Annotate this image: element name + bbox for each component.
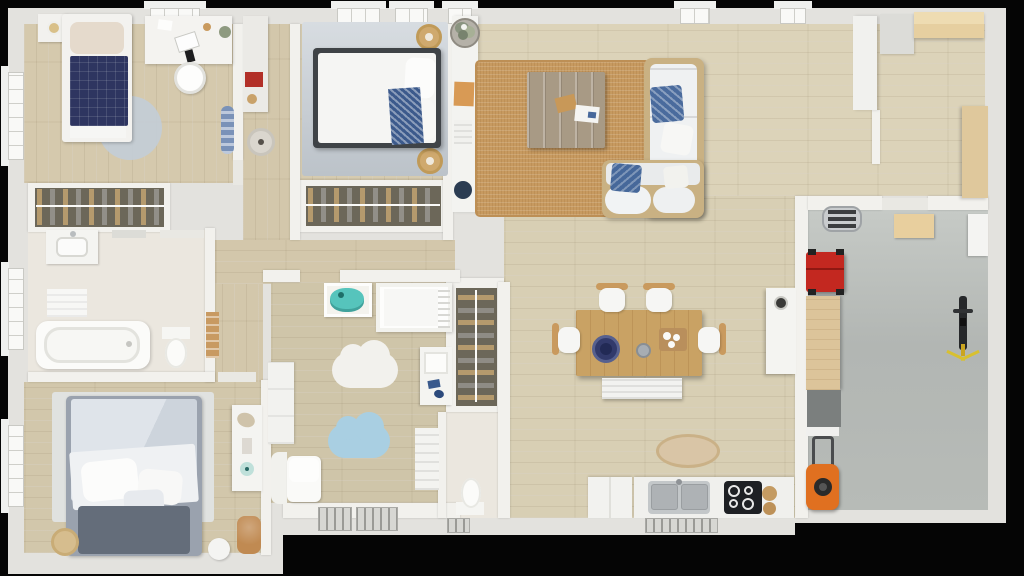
window-guest-bedroom-left bbox=[8, 425, 24, 507]
garage-creeper-pads bbox=[828, 210, 856, 228]
hall-closet-rod-rod bbox=[475, 290, 477, 402]
bath-vanity-faucet bbox=[70, 231, 76, 237]
kitchen-oval-rug-rug bbox=[656, 434, 720, 468]
kids-desk-chair-seat bbox=[174, 62, 206, 94]
coffee-table-blue-card bbox=[588, 112, 597, 119]
window-nursery-bottom-1 bbox=[318, 507, 352, 531]
navy-bowl-center bbox=[600, 343, 612, 355]
lawn-mower-handle bbox=[812, 436, 834, 466]
window-living-top-2 bbox=[680, 8, 710, 24]
bicycle-on-stand-stand-post bbox=[961, 344, 965, 356]
dining-chair-left-seat bbox=[558, 327, 580, 353]
kids-closet-clothes bbox=[37, 189, 163, 225]
master-closet-rod bbox=[306, 204, 440, 206]
bath-toilet-bowl bbox=[165, 338, 187, 368]
nursery-toy-box-teal-plush bbox=[330, 288, 364, 312]
garage-door bbox=[882, 198, 928, 210]
dining-chair-top-2-seat bbox=[646, 288, 672, 312]
master-bed-blue-throw bbox=[388, 87, 424, 145]
window-kitchen-bottom bbox=[645, 518, 718, 533]
nook-shelf-dot bbox=[247, 94, 257, 104]
guest-bed-footboard bbox=[78, 506, 190, 554]
bathroom-door bbox=[160, 230, 204, 238]
dining-bench-bench bbox=[602, 378, 682, 399]
cork-stool-stool bbox=[237, 516, 261, 554]
wall-nursery-north-a bbox=[263, 270, 300, 282]
living-console-books bbox=[454, 120, 472, 144]
kitchen-counter-burner-1 bbox=[728, 485, 740, 497]
nursery-armchair-cushion bbox=[289, 458, 319, 482]
wall-nursery-north-b bbox=[340, 270, 460, 282]
guest-dresser-item bbox=[242, 438, 252, 454]
kids-desk-plant bbox=[219, 26, 231, 38]
red-tool-cart-body bbox=[806, 252, 844, 292]
nursery-slat-rack-rack bbox=[415, 428, 439, 490]
red-tool-cart-wheel-2 bbox=[836, 249, 844, 255]
kitchen-unit-divider bbox=[609, 477, 611, 518]
floor-plan-render bbox=[0, 0, 1024, 576]
guest-bedroom-door bbox=[218, 372, 256, 382]
kids-desk-mug bbox=[203, 23, 211, 31]
entry-bench-top bbox=[914, 12, 984, 24]
nursery-crib-mattress bbox=[384, 289, 438, 326]
wall-entry-partition bbox=[872, 110, 880, 164]
wall-garage-north-b bbox=[928, 196, 988, 210]
sofa-white-throw bbox=[660, 122, 695, 157]
serving-tray-cup-3 bbox=[668, 341, 675, 348]
kids-closet-rod bbox=[36, 205, 164, 207]
white-cloud-rug-puff-2 bbox=[358, 340, 390, 372]
kitchen-counter-basin-1 bbox=[651, 484, 678, 510]
wall-bathroom-east bbox=[205, 228, 215, 382]
nursery-toy-box-plush-eye bbox=[338, 292, 344, 298]
nursery-crib-slats bbox=[438, 287, 450, 328]
dining-chair-right-back bbox=[719, 323, 726, 355]
sofa-seat-2 bbox=[653, 187, 695, 213]
window-bathroom-left bbox=[8, 268, 24, 350]
window-living-top-3 bbox=[780, 8, 806, 24]
wall-bathroom-south bbox=[28, 372, 215, 382]
garage-wall-shelf-shelf bbox=[968, 214, 988, 256]
kitchen-counter-board-1 bbox=[762, 486, 777, 501]
wall-wc-east bbox=[498, 282, 510, 518]
kitchen-counter-board-2 bbox=[763, 502, 776, 515]
entry-wardrobe-body bbox=[853, 16, 877, 110]
kids-bed-pillow bbox=[70, 22, 124, 54]
sofa-fringe-pillow bbox=[663, 165, 689, 189]
nursery-armchair-back bbox=[271, 452, 287, 504]
kids-bedroom-door bbox=[233, 160, 243, 185]
dining-chair-right-seat bbox=[698, 327, 720, 353]
bathtub-drain bbox=[126, 341, 132, 347]
potted-plant-leaf-3 bbox=[458, 30, 468, 40]
living-console-navy-vase bbox=[454, 181, 472, 199]
kitchen-counter-burner-4 bbox=[742, 498, 754, 510]
potted-plant-flower bbox=[461, 24, 467, 30]
leaning-board-board bbox=[221, 106, 234, 154]
guest-pouf-pouf bbox=[51, 528, 79, 556]
guest-side-table-top bbox=[208, 538, 230, 560]
dining-chair-top-1-seat bbox=[599, 288, 625, 312]
table-vase-vase bbox=[636, 343, 651, 358]
master-side-table-top-dot bbox=[425, 33, 433, 41]
red-tool-cart-wheel-4 bbox=[836, 289, 844, 295]
nursery-cabinet-body bbox=[268, 362, 294, 444]
master-side-table-bottom-dot bbox=[426, 157, 434, 165]
dining-cabinet-clock bbox=[774, 296, 788, 310]
changing-table-pad bbox=[424, 352, 448, 374]
guest-dresser-teal-dot bbox=[245, 467, 249, 471]
kids-desk-paper bbox=[157, 19, 172, 31]
garage-workbench-top bbox=[806, 296, 840, 390]
red-tool-cart-wheel-3 bbox=[808, 289, 816, 295]
wall-wc-west bbox=[438, 412, 446, 518]
sofa-blue-pillow-2 bbox=[610, 163, 642, 194]
sofa-blue-pillow-1 bbox=[649, 85, 684, 124]
window-nursery-bottom-2 bbox=[356, 507, 398, 531]
entry-gray-cabinet-body bbox=[880, 14, 914, 54]
blue-cloud-rug-puff-2 bbox=[354, 412, 384, 442]
serving-tray-cup-1 bbox=[663, 332, 671, 340]
lawn-mower-cap bbox=[819, 483, 827, 491]
bath-mat-mat bbox=[47, 289, 87, 317]
serving-tray-cup-2 bbox=[673, 334, 680, 341]
nook-shelf-red-book bbox=[245, 72, 263, 87]
bicycle-on-stand-seat bbox=[960, 318, 966, 326]
garage-shelf-strip-shelf bbox=[806, 427, 839, 436]
window-kids-bedroom-left bbox=[8, 72, 24, 160]
kids-bed-foot-sheet bbox=[70, 126, 126, 138]
garage-gray-cabinet-body bbox=[807, 390, 841, 427]
hall-ladder-rack-ladder bbox=[206, 312, 219, 358]
plywood-sheet-sheet bbox=[894, 214, 934, 238]
red-tool-cart-tray-line bbox=[806, 268, 844, 270]
bath-wall-shelf-shelf bbox=[112, 230, 146, 238]
kitchen-counter-basin-2 bbox=[681, 484, 708, 510]
kids-bed-navy-blanket bbox=[70, 56, 128, 126]
nook-basket-knob bbox=[258, 139, 264, 145]
window-wc-bottom bbox=[447, 518, 470, 533]
living-console-orange-box bbox=[454, 82, 475, 107]
wall-kids-bedroom-east bbox=[233, 24, 243, 160]
wc-toilet-bowl bbox=[461, 478, 481, 508]
entry-tall-cabinet-body bbox=[962, 106, 988, 198]
bicycle-on-stand-handlebar bbox=[953, 309, 973, 313]
kitchen-counter-burner-3 bbox=[729, 499, 738, 508]
red-tool-cart-wheel-1 bbox=[808, 249, 816, 255]
kitchen-counter-burner-2 bbox=[744, 486, 753, 495]
kids-nightstand-lamp bbox=[47, 21, 61, 35]
bath-vanity-basin bbox=[56, 237, 88, 257]
kitchen-counter-faucet bbox=[676, 479, 682, 485]
wall-master-west bbox=[290, 24, 300, 240]
